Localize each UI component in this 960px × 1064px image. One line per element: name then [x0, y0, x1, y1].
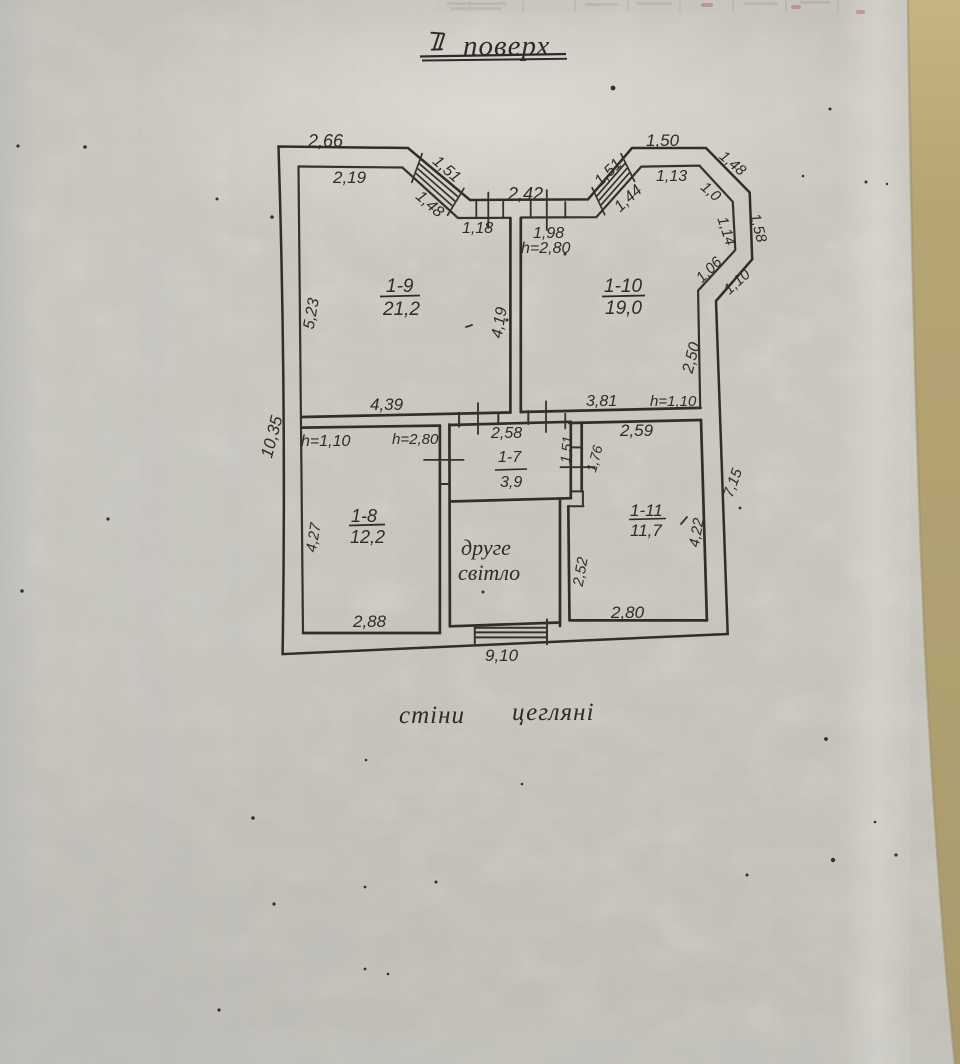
svg-text:1-9: 1-9: [386, 276, 414, 297]
svg-text:1-10: 1-10: [604, 276, 642, 297]
svg-text:h=1,10: h=1,10: [650, 393, 697, 410]
svg-text:стіни: стіни: [399, 702, 465, 729]
svg-text:3,81: 3,81: [586, 393, 617, 410]
svg-text:4,39: 4,39: [370, 395, 404, 414]
svg-text:3,9: 3,9: [500, 474, 522, 491]
svg-text:h=1,10: h=1,10: [301, 433, 350, 450]
svg-text:1-7: 1-7: [498, 449, 522, 466]
svg-text:світло: світло: [458, 560, 520, 585]
svg-text:9,10: 9,10: [485, 646, 519, 665]
svg-text:2,80: 2,80: [610, 603, 645, 622]
svg-text:12,2: 12,2: [350, 527, 385, 547]
svg-text:h=2,80: h=2,80: [521, 240, 570, 257]
svg-text:h=2,80: h=2,80: [392, 431, 439, 448]
svg-text:1-11: 1-11: [630, 501, 663, 520]
svg-text:21,2: 21,2: [382, 299, 420, 320]
svg-text:2,66: 2,66: [307, 131, 344, 151]
svg-text:1,50: 1,50: [646, 131, 680, 150]
svg-text:2,88: 2,88: [352, 612, 387, 631]
svg-text:2,42: 2,42: [507, 184, 543, 204]
svg-text:2,19: 2,19: [332, 168, 367, 187]
svg-text:2,59: 2,59: [619, 421, 654, 440]
svg-text:2,58: 2,58: [490, 425, 522, 442]
svg-text:друге: друге: [461, 535, 511, 560]
svg-text:1,51: 1,51: [557, 435, 575, 464]
svg-text:19,0: 19,0: [605, 298, 642, 319]
svg-text:поверх: поверх: [463, 30, 550, 62]
svg-text:1-8: 1-8: [351, 506, 377, 526]
svg-text:1,18: 1,18: [462, 220, 493, 237]
svg-text:цегляні: цегляні: [512, 699, 595, 726]
svg-text:1,13: 1,13: [656, 168, 687, 185]
svg-text:11,7: 11,7: [630, 521, 662, 540]
